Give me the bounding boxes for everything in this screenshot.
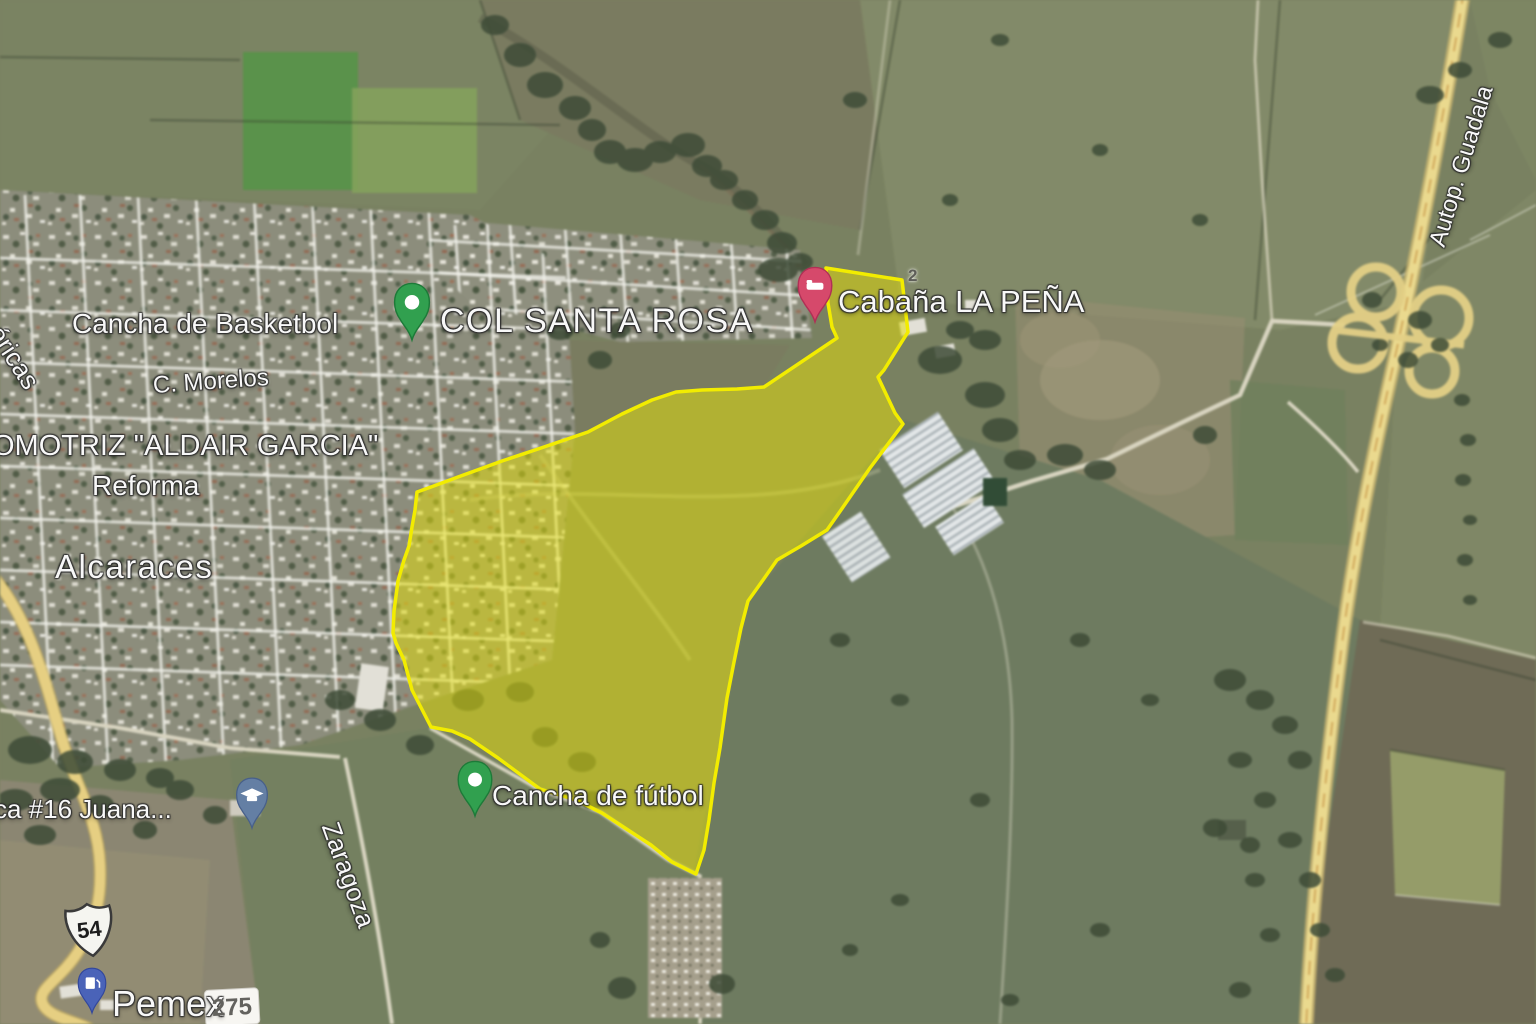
pin-dot-icon [405, 295, 420, 310]
label-col-santa-rosa: COL SANTA ROSA [440, 302, 754, 341]
label-cancha-futbol[interactable]: Cancha de fútbol [492, 780, 704, 812]
label-pemex[interactable]: Pemex [112, 983, 224, 1024]
route-275-number: 275 [211, 993, 252, 1023]
school-pin[interactable] [237, 778, 268, 828]
label-escuela-juana[interactable]: ca #16 Juana... [0, 794, 172, 825]
label-automotriz-aldair-garcia[interactable]: OMOTRIZ "ALDAIR GARCIA" [0, 430, 378, 463]
label-alcaraces: Alcaraces [55, 548, 213, 586]
soccer-field-pin[interactable] [458, 761, 492, 816]
basketball-court-pin[interactable] [395, 283, 430, 340]
label-cancha-basketbol[interactable]: Cancha de Basketbol [72, 308, 338, 340]
highway-54-number: 54 [76, 916, 103, 945]
label-cabana-la-pena[interactable]: Cabaña LA PEÑA [838, 284, 1084, 320]
gas-station-pin[interactable] [78, 968, 106, 1013]
satellite-map[interactable]: Cancha de Basketbol COL SANTA ROSA Cabañ… [0, 0, 1536, 1024]
label-reforma: Reforma [92, 470, 199, 502]
pin-dot-icon [468, 773, 482, 787]
label-marker-2: 2 [908, 266, 917, 286]
lodging-pin[interactable] [798, 267, 832, 322]
